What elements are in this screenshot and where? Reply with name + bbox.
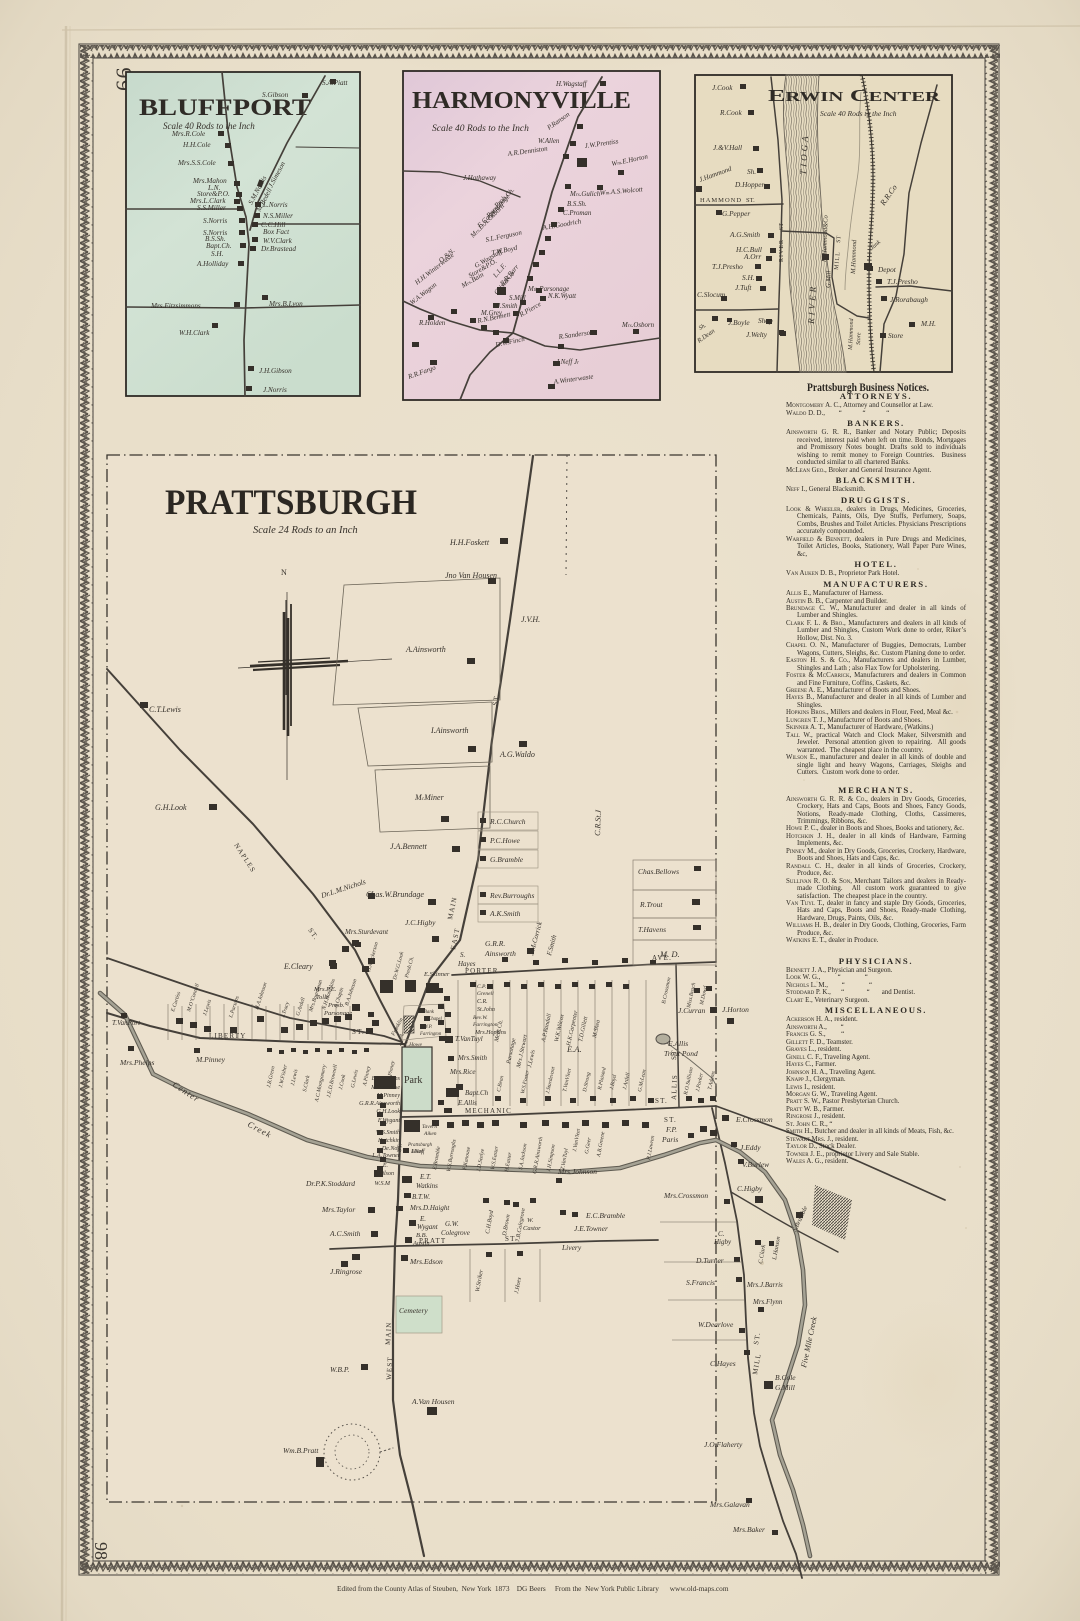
svg-text:M.H.: M.H. bbox=[920, 319, 936, 328]
svg-text:Depot: Depot bbox=[877, 265, 897, 274]
svg-text:W.H.Clark: W.H.Clark bbox=[179, 329, 210, 337]
svg-text:J.E.Towner: J.E.Towner bbox=[574, 1224, 608, 1233]
svg-text:R.Holden: R.Holden bbox=[418, 320, 446, 327]
svg-text:C.Proman: C.Proman bbox=[563, 210, 592, 217]
svg-text:C.Hayes: C.Hayes bbox=[710, 1359, 736, 1368]
svg-text:ST: ST bbox=[779, 223, 785, 230]
svg-text:ST.: ST. bbox=[664, 1116, 677, 1124]
svg-text:Mrs.Baker: Mrs.Baker bbox=[732, 1525, 765, 1534]
svg-text:Bank: Bank bbox=[424, 1010, 435, 1015]
svg-text:N.S.Miller: N.S.Miller bbox=[262, 212, 293, 220]
svg-text:J.&V.Hall: J.&V.Hall bbox=[713, 143, 742, 152]
svg-text:Mrs.Taylor: Mrs.Taylor bbox=[321, 1205, 355, 1214]
svg-text:G.Mill: G.Mill bbox=[825, 270, 833, 288]
svg-text:J.O.Flaherty: J.O.Flaherty bbox=[704, 1440, 743, 1449]
svg-text:J.Tuft: J.Tuft bbox=[735, 283, 752, 292]
svg-text:T.VanPort: T.VanPort bbox=[112, 1019, 141, 1027]
svg-text:Mrs.Sturdevant: Mrs.Sturdevant bbox=[344, 928, 389, 936]
svg-text:G.Bramble: G.Bramble bbox=[490, 855, 524, 864]
svg-text:E.: E. bbox=[419, 1215, 426, 1223]
svg-text:Grenell: Grenell bbox=[477, 991, 494, 997]
svg-text:Dr.Brastead: Dr.Brastead bbox=[260, 245, 296, 253]
svg-text:M.Pinney: M.Pinney bbox=[195, 1055, 226, 1064]
svg-text:A.G.Smith: A.G.Smith bbox=[729, 230, 760, 239]
svg-text:G.R.R.: G.R.R. bbox=[485, 939, 505, 948]
svg-text:Scale 40 Rods to the Inch: Scale 40 Rods to the Inch bbox=[820, 109, 897, 118]
svg-text:J.Welty: J.Welty bbox=[746, 330, 768, 339]
svg-text:Mrs.Rice: Mrs.Rice bbox=[449, 1068, 475, 1076]
svg-text:D.Hopper: D.Hopper bbox=[734, 180, 765, 189]
svg-text:J.Curran: J.Curran bbox=[678, 1006, 706, 1015]
svg-text:Mrs.Fitzsimmons: Mrs.Fitzsimmons bbox=[150, 302, 201, 310]
svg-text:C.: C. bbox=[718, 1230, 725, 1238]
svg-text:Mrs.Osborn: Mrs.Osborn bbox=[621, 322, 655, 329]
svg-text:W.S.M: W.S.M bbox=[375, 1181, 391, 1187]
svg-text:E.A.: E.A. bbox=[566, 1044, 582, 1054]
svg-text:Colegrove: Colegrove bbox=[441, 1229, 470, 1237]
svg-text:Trout Pond: Trout Pond bbox=[664, 1049, 698, 1058]
svg-text:Scale 24 Rods to an Inch: Scale 24 Rods to an Inch bbox=[253, 525, 358, 536]
svg-text:N: N bbox=[281, 568, 287, 577]
svg-text:Mrs.B.Lyon: Mrs.B.Lyon bbox=[268, 300, 303, 308]
svg-text:ALLIS: ALLIS bbox=[670, 1074, 679, 1100]
svg-text:Livery: Livery bbox=[561, 1243, 582, 1252]
svg-text:T.VanTuyl: T.VanTuyl bbox=[455, 1035, 483, 1043]
svg-text:E.Crossmon: E.Crossmon bbox=[735, 1115, 773, 1124]
svg-text:Mrs.R.Cole: Mrs.R.Cole bbox=[171, 130, 206, 138]
svg-text:Hayes: Hayes bbox=[457, 960, 476, 968]
svg-text:Sh.: Sh. bbox=[747, 167, 756, 176]
svg-text:M.Hammond: M.Hammond bbox=[848, 317, 855, 351]
svg-text:A.Holliday: A.Holliday bbox=[196, 260, 229, 268]
svg-text:J.Norris: J.Norris bbox=[263, 386, 287, 394]
svg-text:Mrs.S.S.Cole: Mrs.S.S.Cole bbox=[177, 159, 217, 167]
svg-text:A.Orr: A.Orr bbox=[743, 252, 761, 261]
svg-text:R.Trout: R.Trout bbox=[639, 900, 663, 909]
svg-text:T.J.Presho: T.J.Presho bbox=[887, 277, 918, 286]
svg-text:Mrs.Phelps: Mrs.Phelps bbox=[119, 1058, 154, 1067]
svg-text:B.T.W.: B.T.W. bbox=[412, 1193, 430, 1201]
svg-text:G.W.: G.W. bbox=[445, 1220, 459, 1228]
svg-text:S.Francis: S.Francis bbox=[686, 1278, 715, 1287]
svg-text:J.Smith: J.Smith bbox=[497, 303, 518, 310]
svg-text:J.C.Higby: J.C.Higby bbox=[405, 918, 436, 927]
svg-text:Farrington: Farrington bbox=[472, 1022, 498, 1028]
svg-text:HAMMOND: HAMMOND bbox=[700, 197, 742, 204]
svg-text:LIBERTY: LIBERTY bbox=[209, 1032, 247, 1040]
svg-text:E.Cleary: E.Cleary bbox=[283, 962, 313, 971]
svg-text:A.Van Housen: A.Van Housen bbox=[411, 1397, 455, 1406]
svg-text:C.T.Lewis: C.T.Lewis bbox=[149, 705, 181, 714]
svg-text:F.P.: F.P. bbox=[665, 1125, 677, 1134]
svg-text:E.Allis: E.Allis bbox=[457, 1099, 477, 1107]
svg-text:C.Slocum: C.Slocum bbox=[697, 290, 725, 299]
svg-text:Mth.Parsonage: Mth.Parsonage bbox=[527, 286, 569, 293]
svg-text:E.Allis: E.Allis bbox=[667, 1039, 688, 1048]
svg-text:RIVER: RIVER bbox=[779, 239, 785, 262]
svg-text:C.R.St.J: C.R.St.J bbox=[593, 809, 603, 836]
svg-text:R.Cook: R.Cook bbox=[719, 108, 742, 117]
svg-text:H.H.Foskett: H.H.Foskett bbox=[449, 538, 490, 547]
svg-text:Aiken: Aiken bbox=[423, 1131, 437, 1137]
svg-text:MECHANIC: MECHANIC bbox=[465, 1107, 512, 1115]
svg-text:Higby: Higby bbox=[713, 1238, 732, 1246]
svg-text:McMiner: McMiner bbox=[414, 793, 445, 802]
svg-text:Mrs.D.Haight: Mrs.D.Haight bbox=[409, 1204, 450, 1212]
svg-text:J.Neff Jr: J.Neff Jr bbox=[556, 359, 579, 366]
svg-text:Mrs.Flynn: Mrs.Flynn bbox=[752, 1298, 783, 1306]
svg-text:S.H.: S.H. bbox=[742, 273, 755, 282]
svg-text:T.J.Presho: T.J.Presho bbox=[712, 262, 743, 271]
svg-text:Park: Park bbox=[404, 1075, 422, 1086]
svg-text:A.K.Smith: A.K.Smith bbox=[489, 909, 521, 918]
svg-text:J.Hathaway: J.Hathaway bbox=[463, 175, 497, 182]
svg-text:A.G.Waldo: A.G.Waldo bbox=[499, 750, 535, 759]
svg-text:Chas.Bellows: Chas.Bellows bbox=[638, 867, 679, 876]
svg-text:C.Higby: C.Higby bbox=[737, 1184, 763, 1193]
svg-text:H.H.Cole: H.H.Cole bbox=[182, 141, 211, 149]
svg-text:G.Mill: G.Mill bbox=[775, 1383, 795, 1392]
svg-text:S.Gibson: S.Gibson bbox=[262, 91, 289, 99]
svg-text:Wm.B.Pratt: Wm.B.Pratt bbox=[283, 1446, 319, 1455]
svg-text:Bapt.Ch: Bapt.Ch bbox=[465, 1089, 489, 1097]
svg-text:Mrs.Gulich: Mrs.Gulich bbox=[569, 191, 601, 198]
svg-text:H.Wagstaff: H.Wagstaff bbox=[555, 81, 588, 88]
svg-text:S.: S. bbox=[460, 951, 466, 959]
svg-text:ST.: ST. bbox=[352, 1028, 365, 1036]
svg-text:W.V.Clark: W.V.Clark bbox=[263, 237, 293, 245]
svg-text:S.Norris: S.Norris bbox=[203, 217, 227, 225]
svg-text:Austin: Austin bbox=[412, 1240, 430, 1247]
svg-text:Castor: Castor bbox=[523, 1225, 541, 1232]
svg-text:P.C.Howe: P.C.Howe bbox=[489, 836, 521, 845]
svg-text:J.Rorabaugh: J.Rorabaugh bbox=[890, 295, 928, 304]
svg-text:Ainsworth: Ainsworth bbox=[484, 949, 516, 958]
svg-text:J.Ringrose: J.Ringrose bbox=[330, 1267, 363, 1276]
svg-text:Farrington: Farrington bbox=[419, 1032, 442, 1037]
svg-text:G.Pepper: G.Pepper bbox=[722, 209, 750, 218]
svg-text:98: 98 bbox=[91, 1542, 111, 1560]
svg-text:Dr.P.K.Stoddard: Dr.P.K.Stoddard bbox=[305, 1179, 355, 1188]
svg-text:D.Turner: D.Turner bbox=[695, 1256, 724, 1265]
svg-text:Mrs.Johnson: Mrs.Johnson bbox=[557, 1167, 597, 1176]
svg-text:S.Mill: S.Mill bbox=[509, 295, 526, 302]
svg-text:HARMONYVILLE: HARMONYVILLE bbox=[412, 88, 631, 114]
svg-text:J.A.Bennett: J.A.Bennett bbox=[390, 842, 428, 851]
svg-text:V.Burlew: V.Burlew bbox=[742, 1160, 769, 1169]
svg-text:Cemetery: Cemetery bbox=[399, 1306, 428, 1315]
svg-text:J.Horton: J.Horton bbox=[722, 1005, 749, 1014]
svg-text:RIVER: RIVER bbox=[806, 284, 818, 325]
svg-text:S.H.: S.H. bbox=[211, 250, 224, 258]
svg-text:B.S.Sh.: B.S.Sh. bbox=[567, 201, 587, 208]
svg-text:G.R.R.Ainsworth: G.R.R.Ainsworth bbox=[359, 1101, 400, 1107]
svg-text:PORTER: PORTER bbox=[465, 967, 499, 975]
svg-text:Bapt.Ch.: Bapt.Ch. bbox=[206, 242, 232, 250]
svg-text:S.S.Miller: S.S.Miller bbox=[197, 204, 226, 212]
svg-text:W.Dearlove: W.Dearlove bbox=[698, 1320, 734, 1329]
svg-text:Rev.W.: Rev.W. bbox=[472, 1015, 488, 1021]
svg-text:Watkins: Watkins bbox=[416, 1182, 438, 1190]
svg-text:E.T.Watkins: E.T.Watkins bbox=[371, 1076, 401, 1082]
svg-text:J.H.Gibson: J.H.Gibson bbox=[259, 367, 292, 375]
svg-text:W.Allen: W.Allen bbox=[538, 138, 560, 145]
svg-text:A.Ainsworth: A.Ainsworth bbox=[405, 645, 446, 654]
svg-text:C.R.: C.R. bbox=[477, 999, 488, 1005]
svg-text:Mrs.J.Barris: Mrs.J.Barris bbox=[746, 1281, 783, 1289]
svg-text:ST.: ST. bbox=[397, 1143, 404, 1152]
svg-text:E.Skinner: E.Skinner bbox=[423, 971, 450, 978]
svg-text:T.Havens: T.Havens bbox=[638, 925, 666, 934]
svg-text:ST: ST bbox=[836, 235, 843, 243]
svg-text:W.B.P.: W.B.P. bbox=[330, 1365, 350, 1374]
svg-text:E.C.Bramble: E.C.Bramble bbox=[585, 1211, 626, 1220]
svg-text:J.V.H.: J.V.H. bbox=[521, 615, 540, 624]
svg-text:P.C.Howe: P.C.Howe bbox=[399, 1042, 422, 1048]
svg-text:B.B.: B.B. bbox=[416, 1232, 428, 1239]
svg-text:ST.: ST. bbox=[746, 197, 755, 204]
svg-text:M.Purchase: M.Purchase bbox=[370, 1085, 400, 1091]
svg-text:Box Fact: Box Fact bbox=[263, 228, 290, 236]
svg-text:M. D.: M. D. bbox=[659, 949, 680, 959]
svg-text:Prattsburgh: Prattsburgh bbox=[407, 1143, 432, 1148]
svg-text:W.: W. bbox=[527, 1217, 534, 1224]
svg-text:E.T.: E.T. bbox=[419, 1173, 431, 1181]
svg-text:G.H.Look: G.H.Look bbox=[155, 803, 187, 812]
svg-text:Mrs.Edson: Mrs.Edson bbox=[409, 1257, 443, 1266]
svg-text:I.Neff: I.Neff bbox=[410, 1148, 426, 1155]
svg-text:Rev.Burroughs: Rev.Burroughs bbox=[489, 891, 534, 900]
svg-text:MAIN: MAIN bbox=[384, 1321, 393, 1345]
svg-text:Mrs.Galavan: Mrs.Galavan bbox=[709, 1500, 750, 1509]
svg-text:J.Cook: J.Cook bbox=[712, 83, 733, 92]
svg-text:Scale 40 Rods to the Inch: Scale 40 Rods to the Inch bbox=[432, 124, 529, 134]
svg-text:Store: Store bbox=[856, 332, 862, 345]
svg-text:PRATTSBURGH: PRATTSBURGH bbox=[165, 482, 417, 522]
svg-text:Mrs.Smith: Mrs.Smith bbox=[457, 1054, 487, 1062]
svg-text:Wygant: Wygant bbox=[417, 1223, 439, 1231]
svg-text:St.John: St.John bbox=[477, 1007, 495, 1013]
svg-text:ERWIN CENTER: ERWIN CENTER bbox=[768, 86, 940, 105]
svg-text:J.Eddy: J.Eddy bbox=[740, 1143, 761, 1152]
svg-text:WEST: WEST bbox=[385, 1356, 394, 1380]
svg-text:W.P.: W.P. bbox=[424, 1025, 432, 1030]
svg-text:C.P.: C.P. bbox=[477, 984, 486, 990]
svg-text:M.Hammond: M.Hammond bbox=[850, 239, 858, 275]
svg-text:N.K.Wyatt: N.K.Wyatt bbox=[547, 293, 577, 300]
svg-text:Mrs.Crossmon: Mrs.Crossmon bbox=[663, 1191, 708, 1200]
svg-text:Paris: Paris bbox=[661, 1135, 678, 1144]
svg-text:R.C.Church: R.C.Church bbox=[489, 817, 526, 826]
svg-text:Store: Store bbox=[888, 331, 904, 340]
svg-text:I.Ainsworth: I.Ainsworth bbox=[430, 726, 469, 735]
svg-text:B.Cole: B.Cole bbox=[775, 1373, 796, 1382]
svg-text:A.C.Smith: A.C.Smith bbox=[329, 1229, 361, 1238]
svg-text:ST.: ST. bbox=[655, 1097, 668, 1105]
